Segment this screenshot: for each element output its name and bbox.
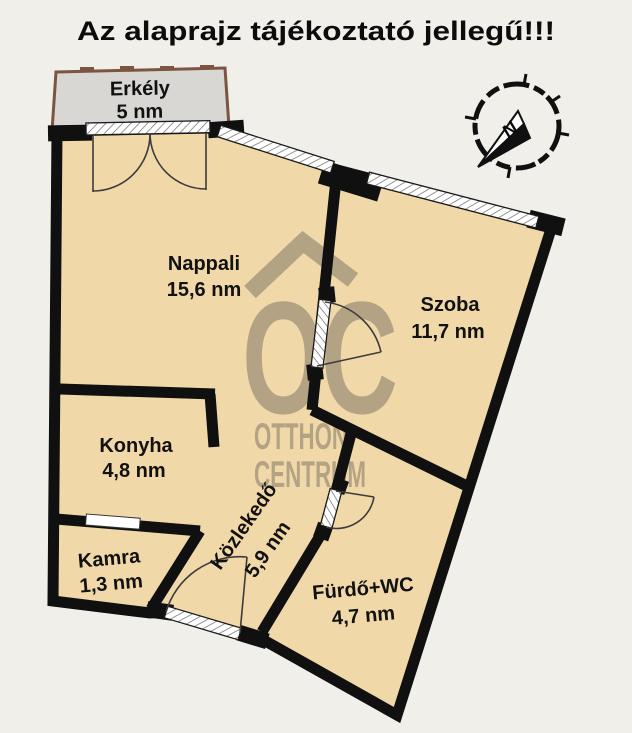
disclaimer-title: Az alaprajz tájékoztató jellegű!!! xyxy=(77,16,555,46)
room-area-konyha: 4,8 nm xyxy=(102,460,165,482)
floorplan-page: Az alaprajz tájékoztató jellegű!!! Erkél… xyxy=(0,0,632,733)
wall-konyha-east xyxy=(210,394,214,447)
floorplan-canvas: Az alaprajz tájékoztató jellegű!!! Erkél… xyxy=(0,0,632,733)
room-area-szoba: 11,7 nm xyxy=(411,321,484,343)
room-label-konyha: Konyha xyxy=(99,435,173,457)
balcony-door-sill xyxy=(86,121,210,135)
room-area-erkely: 5 nm xyxy=(116,101,163,124)
room-label-erkely: Erkély xyxy=(110,77,171,100)
room-area-nappali: 15,6 nm xyxy=(167,279,241,301)
room-label-szoba: Szoba xyxy=(421,294,481,316)
wall-konyha-north xyxy=(60,389,215,394)
room-label-nappali: Nappali xyxy=(168,253,240,275)
